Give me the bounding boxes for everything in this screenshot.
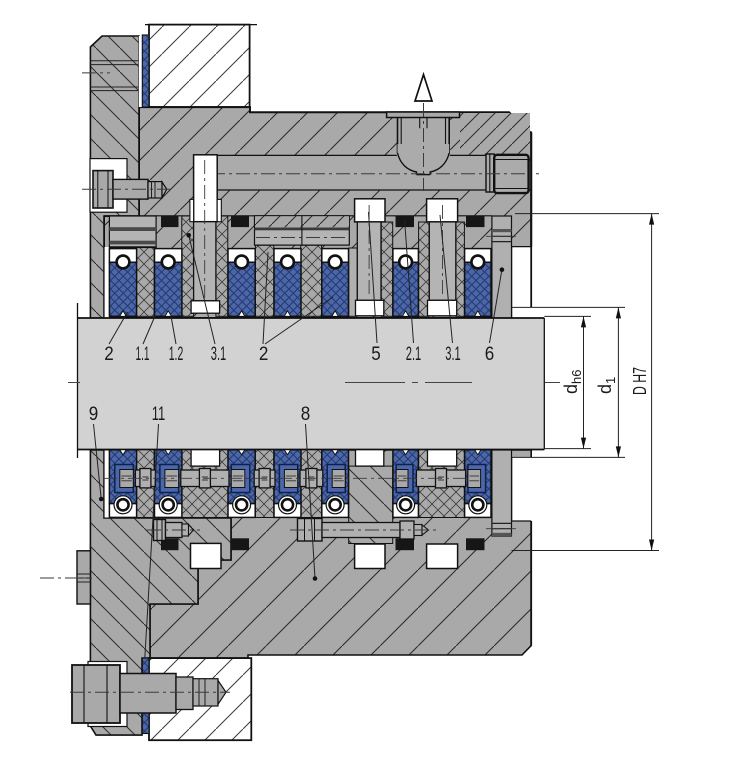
svg-text:11: 11: [152, 403, 166, 425]
svg-text:3.1: 3.1: [211, 343, 227, 365]
svg-text:9: 9: [89, 403, 99, 425]
svg-text:6: 6: [485, 343, 495, 365]
svg-text:3.1: 3.1: [445, 343, 461, 365]
svg-text:D H7: D H7: [630, 367, 650, 395]
svg-text:2: 2: [259, 343, 269, 365]
svg-text:1.1: 1.1: [136, 343, 150, 365]
svg-text:5: 5: [371, 343, 381, 365]
svg-text:1.2: 1.2: [169, 343, 184, 365]
svg-text:2.1: 2.1: [406, 343, 422, 365]
svg-text:8: 8: [301, 403, 311, 425]
svg-text:2: 2: [104, 343, 114, 365]
